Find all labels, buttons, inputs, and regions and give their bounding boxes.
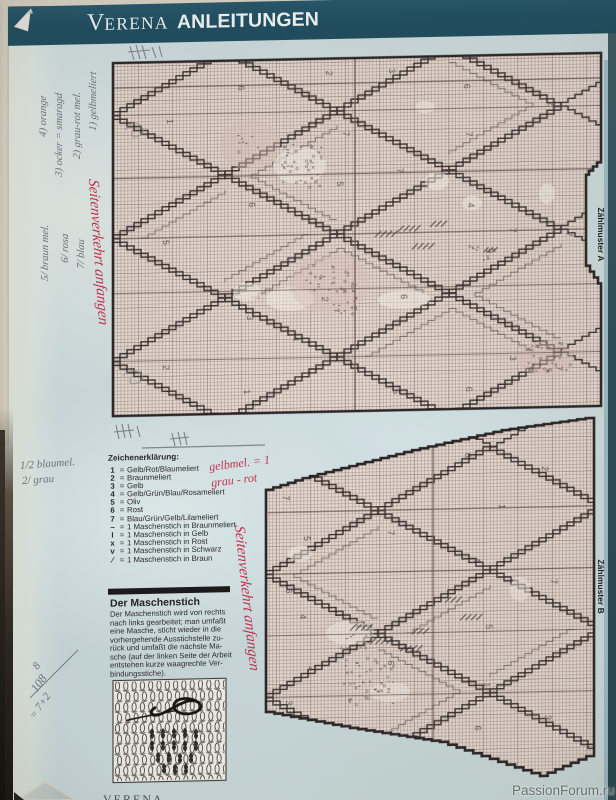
svg-text:6: 6 bbox=[386, 660, 396, 665]
svg-text:5: 5 bbox=[391, 389, 401, 394]
svg-text:2: 2 bbox=[324, 70, 334, 75]
svg-text:6: 6 bbox=[247, 202, 257, 207]
svg-text:4: 4 bbox=[466, 203, 476, 208]
svg-text:6: 6 bbox=[236, 85, 246, 90]
svg-text:1: 1 bbox=[497, 504, 507, 509]
svg-text:2: 2 bbox=[161, 365, 171, 370]
svg-text:5: 5 bbox=[484, 624, 494, 629]
svg-text:5: 5 bbox=[161, 240, 171, 245]
svg-text:6: 6 bbox=[464, 387, 474, 392]
svg-text:7: 7 bbox=[341, 131, 351, 136]
svg-text:3: 3 bbox=[387, 68, 397, 73]
svg-text:1: 1 bbox=[165, 119, 175, 124]
svg-text:5: 5 bbox=[487, 248, 497, 253]
svg-text:7: 7 bbox=[395, 168, 405, 173]
svg-text:1: 1 bbox=[482, 682, 492, 687]
svg-text:4: 4 bbox=[472, 557, 482, 562]
svg-text:6: 6 bbox=[473, 725, 483, 730]
svg-text:4: 4 bbox=[298, 614, 308, 619]
svg-text:2: 2 bbox=[307, 666, 317, 671]
svg-text:5: 5 bbox=[335, 181, 345, 186]
svg-text:6: 6 bbox=[462, 84, 472, 89]
svg-text:2: 2 bbox=[540, 466, 550, 471]
svg-text:7: 7 bbox=[549, 579, 559, 584]
svg-text:6: 6 bbox=[463, 453, 473, 458]
svg-text:3: 3 bbox=[508, 356, 518, 361]
svg-text:3: 3 bbox=[284, 700, 294, 705]
svg-text:5: 5 bbox=[302, 536, 312, 541]
svg-text:1: 1 bbox=[242, 389, 252, 394]
svg-text:7: 7 bbox=[508, 228, 518, 233]
svg-text:7: 7 bbox=[464, 132, 474, 137]
svg-text:4: 4 bbox=[291, 336, 301, 341]
svg-text:2: 2 bbox=[546, 101, 556, 106]
svg-text:3: 3 bbox=[245, 315, 255, 320]
svg-text:3: 3 bbox=[543, 715, 553, 720]
svg-text:6: 6 bbox=[399, 294, 409, 299]
svg-text:7: 7 bbox=[564, 231, 574, 236]
svg-text:6: 6 bbox=[284, 588, 294, 593]
svg-text:7: 7 bbox=[281, 495, 291, 500]
svg-text:7: 7 bbox=[386, 530, 396, 535]
svg-text:7: 7 bbox=[554, 366, 564, 371]
svg-text:2: 2 bbox=[320, 297, 330, 302]
